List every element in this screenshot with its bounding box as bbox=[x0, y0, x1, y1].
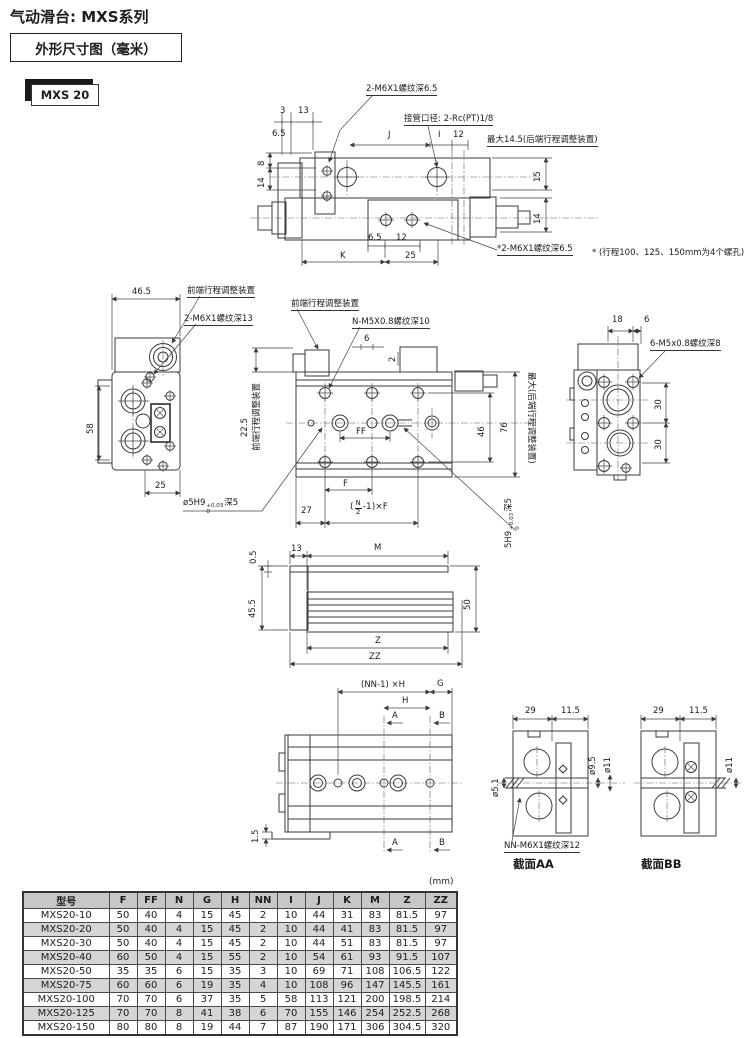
model-tab: MXS 20 bbox=[31, 84, 99, 106]
value-cell: 10 bbox=[277, 937, 305, 951]
bb-dim-29: 29 bbox=[653, 707, 664, 716]
table-row: MXS20-7560606193541010896147145.5161 bbox=[23, 979, 457, 993]
value-cell: 35 bbox=[137, 965, 165, 979]
section-bb-caption: 截面BB bbox=[641, 858, 682, 870]
value-cell: 44 bbox=[305, 923, 333, 937]
dim-14-right: 14 bbox=[534, 213, 543, 224]
table-row: MXS20-150808081944787190171306304.5320 bbox=[23, 1021, 457, 1036]
value-cell: 214 bbox=[425, 993, 457, 1007]
model-cell: MXS20-10 bbox=[23, 909, 109, 923]
value-cell: 38 bbox=[221, 1007, 249, 1021]
value-cell: 50 bbox=[109, 937, 137, 951]
table-header-cell: I bbox=[277, 892, 305, 909]
value-cell: 107 bbox=[425, 951, 457, 965]
side-view-linework bbox=[258, 551, 480, 668]
table-unit-label: (mm) bbox=[429, 877, 454, 887]
dim-12-bot: 12 bbox=[396, 234, 407, 243]
dim-25-top: 25 bbox=[405, 252, 416, 261]
port-note: 接管口径: 2-Rc(PT)1/8 bbox=[404, 115, 493, 126]
model-cell: MXS20-150 bbox=[23, 1021, 109, 1036]
value-cell: 70 bbox=[137, 1007, 165, 1021]
value-cell: 50 bbox=[109, 923, 137, 937]
value-cell: 2 bbox=[249, 951, 277, 965]
value-cell: 60 bbox=[137, 979, 165, 993]
dim-Z: Z bbox=[375, 637, 381, 646]
value-cell: 2 bbox=[249, 923, 277, 937]
model-cell: MXS20-20 bbox=[23, 923, 109, 937]
dim-6-end: 6 bbox=[644, 316, 649, 325]
end-thread-note: 6-M5x0.8螺纹深8 bbox=[650, 340, 721, 351]
dim-6-5-top: 6.5 bbox=[272, 130, 286, 139]
section-aa-caption: 截面AA bbox=[513, 858, 554, 870]
dim-45-5: 45.5 bbox=[249, 599, 258, 618]
value-cell: 83 bbox=[361, 923, 389, 937]
value-cell: 2 bbox=[249, 909, 277, 923]
value-cell: 50 bbox=[109, 909, 137, 923]
table-header-row: 型号FFFNGHNNIJKMZZZ bbox=[23, 892, 457, 909]
dim-F: F bbox=[343, 480, 348, 489]
dim-13-side: 13 bbox=[291, 545, 302, 554]
value-cell: 306 bbox=[361, 1021, 389, 1036]
dim-25-left: 25 bbox=[155, 482, 166, 491]
bb-dim-11-5: 11.5 bbox=[689, 707, 708, 716]
table-row: MXS20-1050404154521044318381.597 bbox=[23, 909, 457, 923]
dimension-table: 型号FFFNGHNNIJKMZZZMXS20-10504041545210443… bbox=[22, 891, 458, 1036]
dim-A-bot: A bbox=[392, 839, 398, 848]
plan-adjuster-note: 前端行程调整装置 bbox=[291, 300, 359, 311]
table-row: MXS20-125707084138670155146254252.5268 bbox=[23, 1007, 457, 1021]
value-cell: 97 bbox=[425, 937, 457, 951]
aa-dim-9-5: ø9.5 bbox=[589, 756, 598, 775]
value-cell: 58 bbox=[277, 993, 305, 1007]
dim-58: 58 bbox=[87, 423, 96, 434]
value-cell: 50 bbox=[137, 951, 165, 965]
table-header-cell: 型号 bbox=[23, 892, 109, 909]
dim-18: 18 bbox=[612, 316, 623, 325]
bottom-view-linework bbox=[262, 688, 462, 853]
plan-rear-adjuster-note: 最大(后端行程调整装置) bbox=[526, 372, 535, 464]
value-cell: 60 bbox=[109, 951, 137, 965]
value-cell: 81.5 bbox=[389, 909, 425, 923]
value-cell: 10 bbox=[277, 909, 305, 923]
aa-dim-11-5: 11.5 bbox=[561, 707, 580, 716]
value-cell: 200 bbox=[361, 993, 389, 1007]
table-header-cell: Z bbox=[389, 892, 425, 909]
value-cell: 320 bbox=[425, 1021, 457, 1036]
value-cell: 10 bbox=[277, 923, 305, 937]
dim-ZZ: ZZ bbox=[369, 653, 381, 662]
model-cell: MXS20-50 bbox=[23, 965, 109, 979]
value-cell: 8 bbox=[165, 1007, 193, 1021]
value-cell: 80 bbox=[109, 1021, 137, 1036]
value-cell: 6 bbox=[165, 979, 193, 993]
value-cell: 93 bbox=[361, 951, 389, 965]
dim-6-plan: 6 bbox=[364, 335, 369, 344]
model-text: MXS 20 bbox=[41, 88, 90, 102]
value-cell: 45 bbox=[221, 923, 249, 937]
table-row: MXS20-4060504155521054619391.5107 bbox=[23, 951, 457, 965]
value-cell: 81.5 bbox=[389, 937, 425, 951]
value-cell: 3 bbox=[249, 965, 277, 979]
value-cell: 19 bbox=[193, 1021, 221, 1036]
value-cell: 70 bbox=[109, 993, 137, 1007]
value-cell: 268 bbox=[425, 1007, 457, 1021]
table-row: MXS20-503535615353106971108106.5122 bbox=[23, 965, 457, 979]
value-cell: 40 bbox=[137, 923, 165, 937]
dim-50: 50 bbox=[464, 599, 473, 610]
value-cell: 35 bbox=[109, 965, 137, 979]
value-cell: 6 bbox=[165, 993, 193, 1007]
dim-M: M bbox=[374, 544, 381, 553]
value-cell: 80 bbox=[137, 1021, 165, 1036]
model-cell: MXS20-30 bbox=[23, 937, 109, 951]
aa-dim-29: 29 bbox=[525, 707, 536, 716]
value-cell: 106.5 bbox=[389, 965, 425, 979]
table-header-cell: K bbox=[333, 892, 361, 909]
datasheet-page: 气动滑台: MXS系列 外形尺寸图（毫米） MXS 20 2-M6X1螺纹深6.… bbox=[0, 0, 750, 1038]
value-cell: 4 bbox=[165, 923, 193, 937]
value-cell: 70 bbox=[277, 1007, 305, 1021]
table-row: MXS20-3050404154521044518381.597 bbox=[23, 937, 457, 951]
value-cell: 81.5 bbox=[389, 923, 425, 937]
value-cell: 2 bbox=[249, 937, 277, 951]
model-cell: MXS20-125 bbox=[23, 1007, 109, 1021]
dim-46: 46 bbox=[478, 426, 487, 437]
value-cell: 7 bbox=[249, 1021, 277, 1036]
dim-76: 76 bbox=[501, 422, 510, 433]
value-cell: 55 bbox=[221, 951, 249, 965]
aa-thread-note: NN-M6X1螺纹深12 bbox=[504, 842, 580, 853]
table-row: MXS20-100707063735558113121200198.5214 bbox=[23, 993, 457, 1007]
value-cell: 69 bbox=[305, 965, 333, 979]
value-cell: 31 bbox=[333, 909, 361, 923]
model-cell: MXS20-75 bbox=[23, 979, 109, 993]
value-cell: 51 bbox=[333, 937, 361, 951]
dim-1-5: 1.5 bbox=[252, 829, 261, 843]
value-cell: 122 bbox=[425, 965, 457, 979]
plan-thread-note: N-M5X0.8螺纹深10 bbox=[352, 318, 430, 329]
value-cell: 8 bbox=[165, 1021, 193, 1036]
value-cell: 35 bbox=[221, 979, 249, 993]
value-cell: 15 bbox=[193, 937, 221, 951]
value-cell: 37 bbox=[193, 993, 221, 1007]
value-cell: 45 bbox=[221, 937, 249, 951]
model-cell: MXS20-100 bbox=[23, 993, 109, 1007]
value-cell: 44 bbox=[221, 1021, 249, 1036]
value-cell: 41 bbox=[193, 1007, 221, 1021]
value-cell: 113 bbox=[305, 993, 333, 1007]
value-cell: 10 bbox=[277, 979, 305, 993]
dim-14-left: 14 bbox=[258, 177, 267, 188]
dim-H: H bbox=[402, 697, 408, 706]
value-cell: 15 bbox=[193, 909, 221, 923]
dim-B-bot: B bbox=[439, 839, 445, 848]
dim-13: 13 bbox=[298, 107, 309, 116]
value-cell: 145.5 bbox=[389, 979, 425, 993]
value-cell: 6 bbox=[249, 1007, 277, 1021]
value-cell: 40 bbox=[137, 909, 165, 923]
value-cell: 171 bbox=[333, 1021, 361, 1036]
value-cell: 15 bbox=[193, 923, 221, 937]
value-cell: 146 bbox=[333, 1007, 361, 1021]
value-cell: 54 bbox=[305, 951, 333, 965]
page-title: 气动滑台: MXS系列 bbox=[10, 6, 149, 27]
table-header-cell: FF bbox=[137, 892, 165, 909]
table-header-cell: F bbox=[109, 892, 137, 909]
value-cell: 41 bbox=[333, 923, 361, 937]
dim-8: 8 bbox=[258, 161, 267, 166]
value-cell: 44 bbox=[305, 909, 333, 923]
value-cell: 304.5 bbox=[389, 1021, 425, 1036]
value-cell: 35 bbox=[221, 965, 249, 979]
value-cell: 97 bbox=[425, 909, 457, 923]
value-cell: 96 bbox=[333, 979, 361, 993]
subtitle-box: 外形尺寸图（毫米） bbox=[10, 33, 182, 62]
value-cell: 44 bbox=[305, 937, 333, 951]
table-row: MXS20-2050404154521044418381.597 bbox=[23, 923, 457, 937]
value-cell: 198.5 bbox=[389, 993, 425, 1007]
section-bb-linework bbox=[634, 715, 742, 836]
value-cell: 108 bbox=[361, 965, 389, 979]
bb-dim-11: ø11 bbox=[726, 757, 735, 773]
max-stroke-note: 最大14.5(后端行程调整装置) bbox=[487, 136, 598, 147]
table-header-cell: M bbox=[361, 892, 389, 909]
left-thread-note: 2-M6X1螺纹深13 bbox=[184, 315, 253, 326]
dim-15: 15 bbox=[534, 171, 543, 182]
dim-FF: FF bbox=[356, 428, 366, 437]
value-cell: 45 bbox=[221, 909, 249, 923]
value-cell: 254 bbox=[361, 1007, 389, 1021]
table-header-cell: G bbox=[193, 892, 221, 909]
dim-J: J bbox=[388, 131, 391, 140]
pin-hole-note-vert: 5H9+0.030深5 bbox=[505, 498, 522, 548]
top-thread-note: 2-M6X1螺纹深6.5 bbox=[366, 85, 437, 96]
table-header-cell: H bbox=[221, 892, 249, 909]
pin-hole-note: ø5H9+0.030深5 bbox=[183, 499, 238, 516]
dim-30-a: 30 bbox=[655, 399, 664, 410]
table-header-cell: N bbox=[165, 892, 193, 909]
value-cell: 147 bbox=[361, 979, 389, 993]
model-cell: MXS20-40 bbox=[23, 951, 109, 965]
value-cell: 19 bbox=[193, 979, 221, 993]
left-adjuster-note: 前端行程调整装置 bbox=[187, 287, 255, 298]
value-cell: 91.5 bbox=[389, 951, 425, 965]
value-cell: 252.5 bbox=[389, 1007, 425, 1021]
value-cell: 83 bbox=[361, 909, 389, 923]
value-cell: 61 bbox=[333, 951, 361, 965]
value-cell: 83 bbox=[361, 937, 389, 951]
dim-K: K bbox=[340, 252, 346, 261]
section-aa-linework bbox=[498, 715, 625, 841]
value-cell: 4 bbox=[249, 979, 277, 993]
value-cell: 4 bbox=[165, 951, 193, 965]
value-cell: 60 bbox=[109, 979, 137, 993]
top-thread-note-bottom: *2-M6X1螺纹深6.5 bbox=[497, 245, 573, 256]
dim-22-5: 22.5 bbox=[241, 418, 250, 437]
formula-nf: (N2-1)×F bbox=[350, 500, 388, 516]
value-cell: 97 bbox=[425, 923, 457, 937]
dim-G: G bbox=[437, 680, 444, 689]
dim-I: I bbox=[438, 131, 441, 140]
value-cell: 35 bbox=[221, 993, 249, 1007]
aa-dim-5-1: ø5.1 bbox=[492, 778, 501, 797]
value-cell: 15 bbox=[193, 965, 221, 979]
drawing-canvas bbox=[0, 0, 750, 1038]
plan-front-adjuster-note-vert: 前端行程调整装置 bbox=[253, 383, 262, 451]
dim-46-5: 46.5 bbox=[132, 288, 151, 297]
dim-3: 3 bbox=[280, 107, 285, 116]
dim-0-5: 0.5 bbox=[250, 550, 259, 564]
value-cell: 40 bbox=[137, 937, 165, 951]
aa-dim-11: ø11 bbox=[604, 757, 613, 773]
value-cell: 10 bbox=[277, 965, 305, 979]
dim-A-top: A bbox=[392, 712, 398, 721]
value-cell: 5 bbox=[249, 993, 277, 1007]
value-cell: 4 bbox=[165, 937, 193, 951]
value-cell: 70 bbox=[137, 993, 165, 1007]
value-cell: 161 bbox=[425, 979, 457, 993]
value-cell: 87 bbox=[277, 1021, 305, 1036]
value-cell: 71 bbox=[333, 965, 361, 979]
dim-2: 2 bbox=[389, 357, 398, 362]
dim-B-top: B bbox=[439, 712, 445, 721]
table-header-cell: J bbox=[305, 892, 333, 909]
value-cell: 155 bbox=[305, 1007, 333, 1021]
dim-NN-H: (NN-1) ×H bbox=[361, 681, 405, 690]
dim-27: 27 bbox=[301, 507, 312, 516]
value-cell: 108 bbox=[305, 979, 333, 993]
value-cell: 121 bbox=[333, 993, 361, 1007]
table-header-cell: NN bbox=[249, 892, 277, 909]
value-cell: 15 bbox=[193, 951, 221, 965]
value-cell: 190 bbox=[305, 1021, 333, 1036]
dim-30-b: 30 bbox=[655, 439, 664, 450]
table-header-cell: ZZ bbox=[425, 892, 457, 909]
value-cell: 10 bbox=[277, 951, 305, 965]
value-cell: 70 bbox=[109, 1007, 137, 1021]
holes-note: * (行程100、125、150mm为4个螺孔) bbox=[592, 249, 744, 258]
value-cell: 4 bbox=[165, 909, 193, 923]
dim-12-top: 12 bbox=[453, 131, 464, 140]
value-cell: 6 bbox=[165, 965, 193, 979]
subtitle-text: 外形尺寸图（毫米） bbox=[35, 38, 157, 58]
dim-6-5-bot: 6.5 bbox=[368, 234, 382, 243]
